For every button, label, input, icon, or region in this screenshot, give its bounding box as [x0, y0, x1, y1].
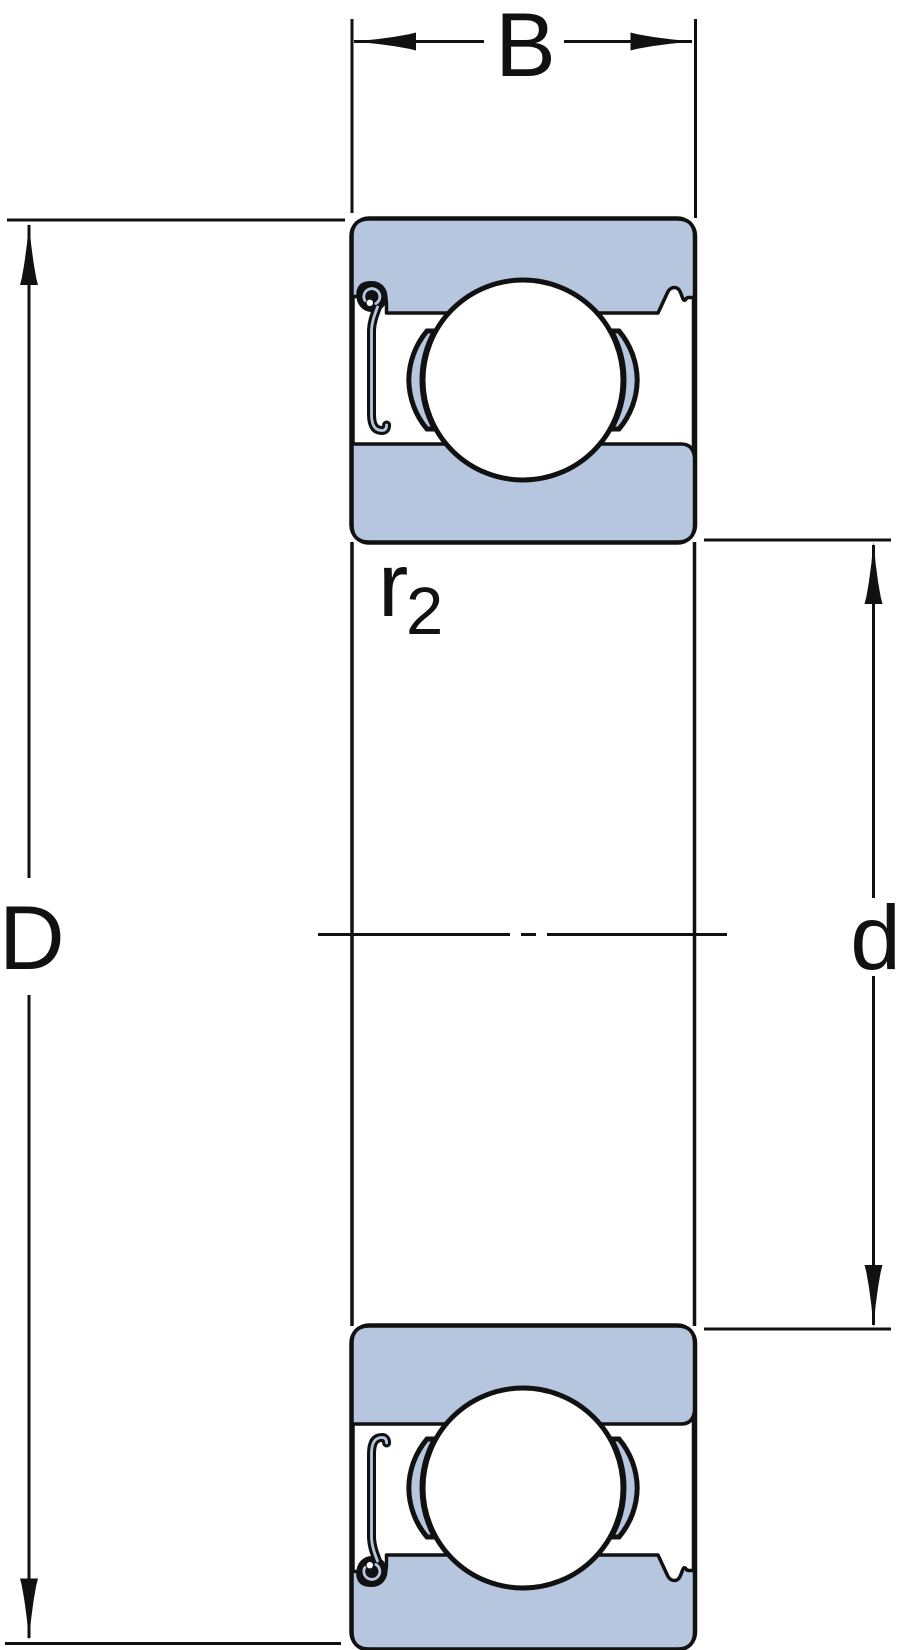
- svg-text:d: d: [850, 888, 900, 989]
- svg-text:2: 2: [406, 574, 443, 649]
- svg-text:D: D: [0, 888, 65, 989]
- svg-text:B: B: [495, 0, 556, 96]
- svg-text:r: r: [378, 535, 408, 636]
